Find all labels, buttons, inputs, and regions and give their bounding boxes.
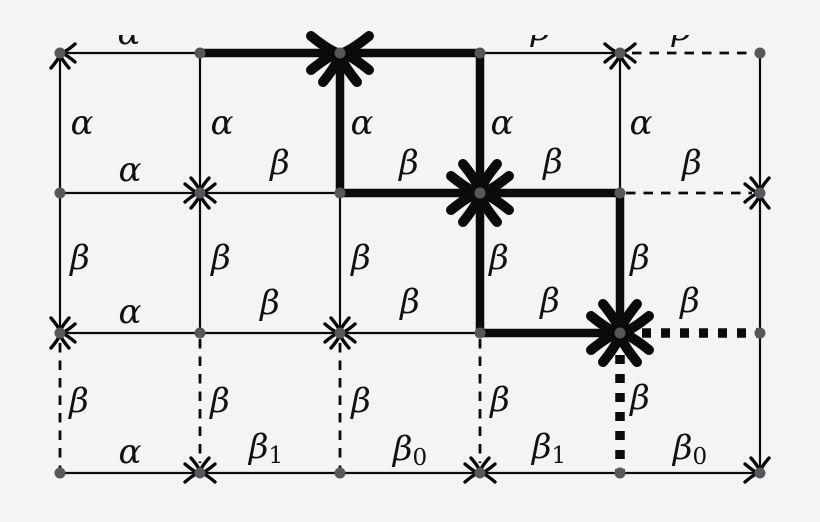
edge-label-beta: β (208, 381, 230, 421)
edge-label-alpha: α (119, 432, 142, 472)
edge-label-beta: β (67, 381, 89, 421)
lattice-node (755, 328, 766, 339)
edge-label-beta: β (488, 380, 510, 420)
lattice-node (475, 468, 486, 479)
edge-label-beta: β (678, 281, 700, 321)
edge-label-alpha: α (491, 103, 514, 143)
edge-label-alpha: α (71, 103, 94, 143)
edge-label-beta: β (209, 238, 231, 278)
edge-label-beta: β (68, 238, 90, 278)
lattice-node (335, 468, 346, 479)
edge-label-alpha: α (211, 103, 234, 143)
edge-label-beta: β (268, 143, 290, 183)
lattice-node (195, 328, 206, 339)
diagram-canvas: αααααββββββββββαββββαββββαβ1β0β1β0αββ (0, 0, 820, 522)
lattice-node (755, 48, 766, 59)
edge-label-alpha: α (119, 150, 142, 190)
lattice-node (55, 188, 66, 199)
edge-label-beta: β (487, 238, 509, 278)
lattice-node (615, 468, 626, 479)
lattice-node (335, 188, 346, 199)
lattice-node (335, 48, 346, 59)
edge-label-alpha: α (351, 103, 374, 143)
lattice-node (615, 48, 626, 59)
edge-label-beta: β (680, 143, 702, 183)
lattice-node (55, 468, 66, 479)
lattice-diagram: αααααββββββββββαββββαββββαβ1β0β1β0αββ (0, 0, 820, 522)
edge-label-beta: β (349, 238, 371, 278)
lattice-node (755, 188, 766, 199)
lattice-node (55, 328, 66, 339)
lattice-node (195, 48, 206, 59)
edge-label-beta: β (398, 282, 420, 322)
lattice-node (335, 328, 346, 339)
lattice-node (755, 468, 766, 479)
edge-label-beta: β (349, 381, 371, 421)
edge-label-alpha: α (630, 103, 653, 143)
lattice-node (475, 188, 486, 199)
lattice-node (195, 188, 206, 199)
edge-label-beta: β (397, 143, 419, 183)
edge-label-beta: β (538, 281, 560, 321)
lattice-node (475, 328, 486, 339)
edge-label-beta: β (628, 238, 650, 278)
edge-label-beta: β (541, 142, 563, 182)
lattice-node (615, 188, 626, 199)
edge-label-beta: β (258, 283, 280, 323)
edge-label-beta: β (628, 378, 650, 418)
lattice-node (55, 48, 66, 59)
lattice-node (195, 468, 206, 479)
edge-label-alpha: α (119, 292, 142, 332)
lattice-node (615, 328, 626, 339)
lattice-node (475, 48, 486, 59)
